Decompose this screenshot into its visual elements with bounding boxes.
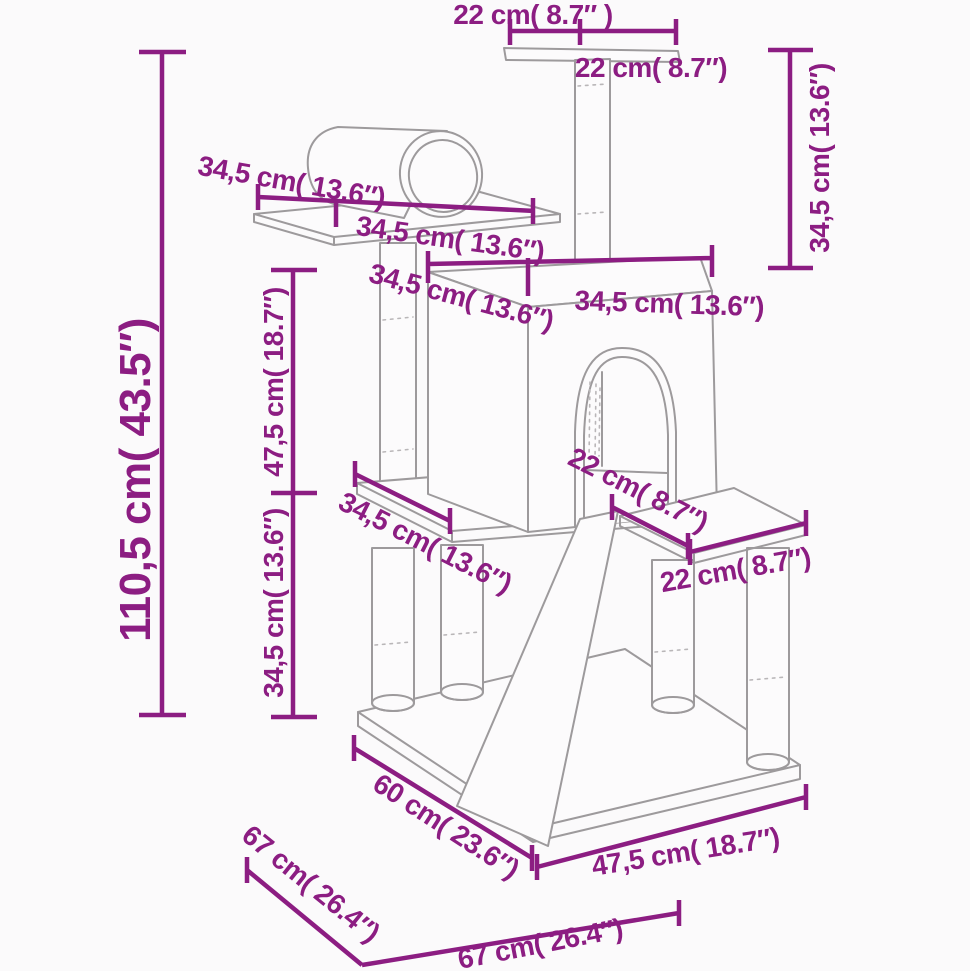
label-top-width-left: 22 cm( 8.7″ ) xyxy=(453,0,612,30)
label-top-width-right: 22 cm( 8.7″) xyxy=(575,52,727,83)
top-post xyxy=(575,59,610,282)
label-total-height: 110,5 cm( 43.5″) xyxy=(111,318,160,642)
label-base-depth-outer: 67 cm( 26.4″) xyxy=(236,819,385,948)
cat-tree-line-art xyxy=(254,48,806,846)
label-base-width-outer: 67 cm( 26.4″) xyxy=(455,913,625,971)
label-house-width: 34,5 cm( 13.6″) xyxy=(574,285,765,323)
label-upper-section-height: 47,5 cm( 18.7″) xyxy=(258,287,289,477)
left-front-post xyxy=(372,548,414,711)
label-top-post-height: 34,5 cm( 13.6″) xyxy=(804,63,835,253)
cat-tree-dimension-diagram: 22 cm( 8.7″ ) 22 cm( 8.7″) 34,5 cm( 13.6… xyxy=(0,0,970,971)
label-lower-section-height: 34,5 cm( 13.6″) xyxy=(258,508,289,698)
